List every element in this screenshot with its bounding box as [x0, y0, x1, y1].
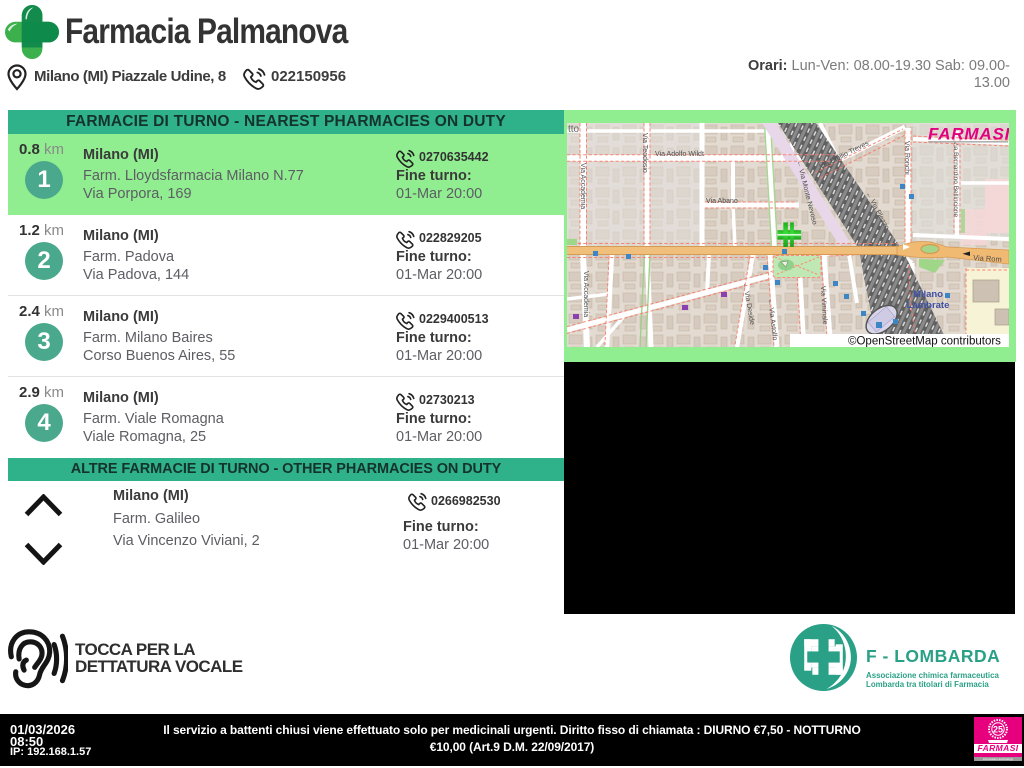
svg-text:Via Accademia: Via Accademia — [582, 271, 589, 317]
svg-text:Milano: Milano — [913, 289, 943, 300]
svg-text:Via Adolfo Wildt: Via Adolfo Wildt — [655, 151, 704, 158]
svg-text:Lambrate: Lambrate — [907, 300, 950, 311]
svg-text:FARMASI: FARMASI — [928, 125, 1009, 144]
svg-text:Via Bernardino Bellincione: Via Bernardino Bellincione — [952, 141, 959, 218]
svg-text:tto: tto — [568, 124, 580, 135]
svg-text:©OpenStreetMap contributors: ©OpenStreetMap contributors — [848, 336, 1001, 348]
svg-text:Via Abano: Via Abano — [706, 198, 738, 205]
svg-text:Via Teodosio: Via Teodosio — [641, 133, 648, 173]
svg-text:Via Accademia: Via Accademia — [579, 163, 586, 209]
svg-text:25: 25 — [993, 725, 1003, 735]
svg-text:Via Ronchi: Via Ronchi — [903, 141, 910, 175]
